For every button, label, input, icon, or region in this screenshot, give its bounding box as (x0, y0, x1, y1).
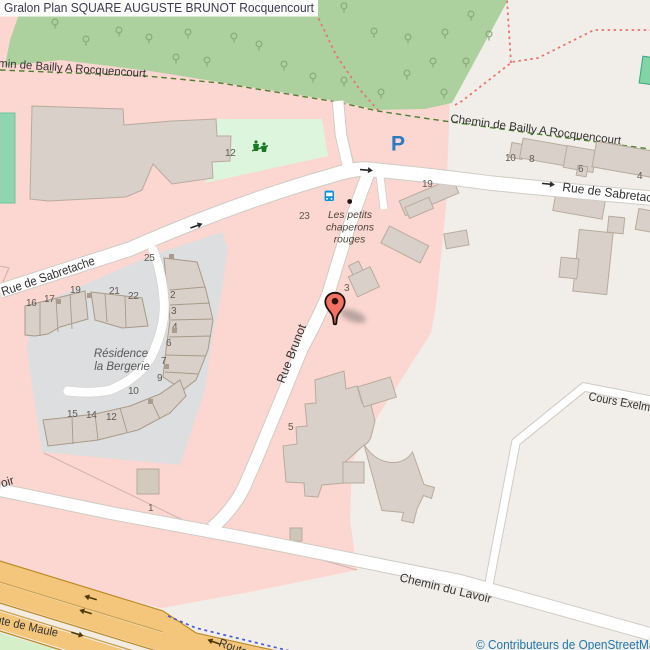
svg-text:22: 22 (128, 291, 139, 302)
svg-text:5: 5 (288, 422, 294, 433)
svg-text:23: 23 (299, 211, 310, 222)
svg-text:rouges: rouges (334, 235, 365, 246)
svg-text:21: 21 (109, 286, 120, 297)
svg-text:12: 12 (225, 148, 236, 159)
svg-text:19: 19 (70, 285, 81, 296)
svg-text:Gralon Plan SQUARE AUGUSTE BRU: Gralon Plan SQUARE AUGUSTE BRUNOT Rocque… (4, 0, 314, 15)
svg-text:19: 19 (422, 179, 433, 190)
svg-text:17: 17 (44, 294, 55, 305)
svg-text:6: 6 (166, 338, 172, 349)
svg-text:4: 4 (637, 171, 643, 182)
svg-text:10: 10 (128, 386, 139, 397)
svg-text:12: 12 (106, 412, 117, 423)
svg-text:1: 1 (148, 503, 154, 514)
svg-text:P: P (391, 133, 405, 156)
svg-text:3: 3 (344, 283, 350, 294)
svg-text:16: 16 (26, 298, 37, 309)
svg-text:3: 3 (171, 306, 177, 317)
svg-text:10: 10 (505, 153, 516, 164)
svg-text:15: 15 (67, 409, 78, 420)
svg-text:la Bergerie: la Bergerie (94, 361, 150, 373)
svg-text:2: 2 (170, 290, 176, 301)
svg-text:6: 6 (578, 164, 584, 175)
svg-text:9: 9 (157, 373, 163, 384)
svg-text:8: 8 (529, 154, 535, 165)
svg-text:© Contributeurs de OpenStreetM: © Contributeurs de OpenStreetMap (476, 637, 650, 650)
svg-text:Les petits: Les petits (328, 210, 372, 221)
svg-text:Résidence: Résidence (94, 348, 148, 360)
svg-text:chaperons: chaperons (326, 223, 374, 234)
svg-text:14: 14 (86, 410, 97, 421)
svg-text:25: 25 (144, 253, 155, 264)
